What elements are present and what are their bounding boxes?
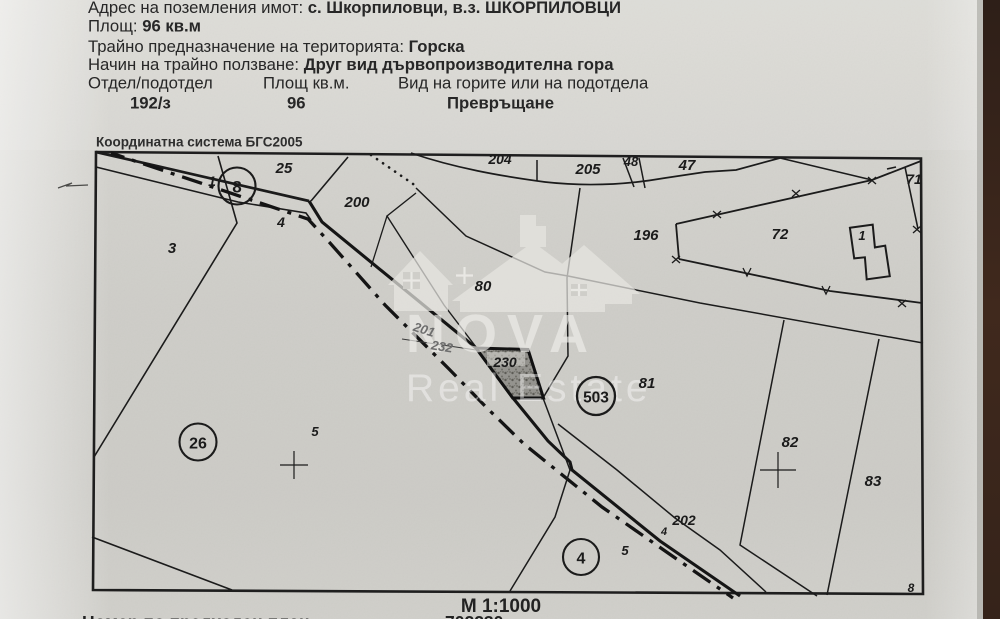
svg-text:82: 82: [782, 434, 799, 451]
svg-text:Превръщане: Превръщане: [447, 94, 554, 113]
svg-text:1: 1: [858, 228, 865, 243]
svg-text:8: 8: [908, 581, 915, 595]
svg-text:Вид на горите или на подотдела: Вид на горите или на подотдела: [398, 74, 649, 93]
svg-text:80: 80: [475, 278, 492, 295]
svg-text:Площ кв.м.: Площ кв.м.: [263, 74, 349, 93]
svg-text:202: 202: [671, 512, 696, 528]
svg-text:48: 48: [623, 154, 639, 169]
svg-text:26: 26: [189, 436, 207, 453]
svg-text:96: 96: [287, 94, 306, 113]
svg-text:83: 83: [865, 473, 882, 490]
svg-text:47: 47: [678, 157, 696, 174]
svg-text:25: 25: [275, 160, 293, 177]
svg-text:Адрес на поземления имот: с. Ш: Адрес на поземления имот: с. Шкорпиловци…: [88, 0, 621, 17]
svg-text:4: 4: [577, 551, 586, 568]
svg-text:Отдел/подотдел: Отдел/подотдел: [88, 74, 213, 93]
svg-text:3: 3: [168, 240, 177, 257]
svg-text:Real Estate: Real Estate: [406, 367, 652, 410]
svg-text:Начин на трайно ползване: Друг: Начин на трайно ползване: Друг вид дърво…: [88, 55, 614, 74]
svg-text:5: 5: [311, 424, 319, 439]
svg-text:Площ: 96 кв.м: Площ: 96 кв.м: [88, 17, 201, 36]
svg-text:5: 5: [621, 543, 629, 558]
svg-text:200: 200: [343, 194, 370, 211]
svg-text:1: 1: [208, 173, 216, 189]
svg-text:Координатна система БГС2005: Координатна система БГС2005: [96, 135, 303, 150]
svg-text:503: 503: [583, 390, 609, 407]
svg-text:196: 196: [633, 227, 659, 244]
svg-text:8: 8: [232, 178, 241, 197]
svg-text:Номер по предходен план:: Номер по предходен план:: [82, 612, 315, 619]
svg-text:4: 4: [276, 214, 285, 230]
svg-text:204: 204: [487, 151, 512, 167]
svg-text:81: 81: [639, 375, 656, 392]
svg-text:205: 205: [574, 161, 601, 178]
svg-text:71: 71: [906, 171, 922, 187]
svg-text:72: 72: [772, 226, 789, 243]
svg-text:Трайно предназначение на терит: Трайно предназначение на територията: Го…: [88, 37, 465, 56]
svg-text:192/з: 192/з: [130, 94, 171, 113]
svg-text:702230: 702230: [445, 612, 504, 619]
svg-text:230: 230: [492, 354, 517, 370]
svg-text:4: 4: [660, 526, 667, 538]
